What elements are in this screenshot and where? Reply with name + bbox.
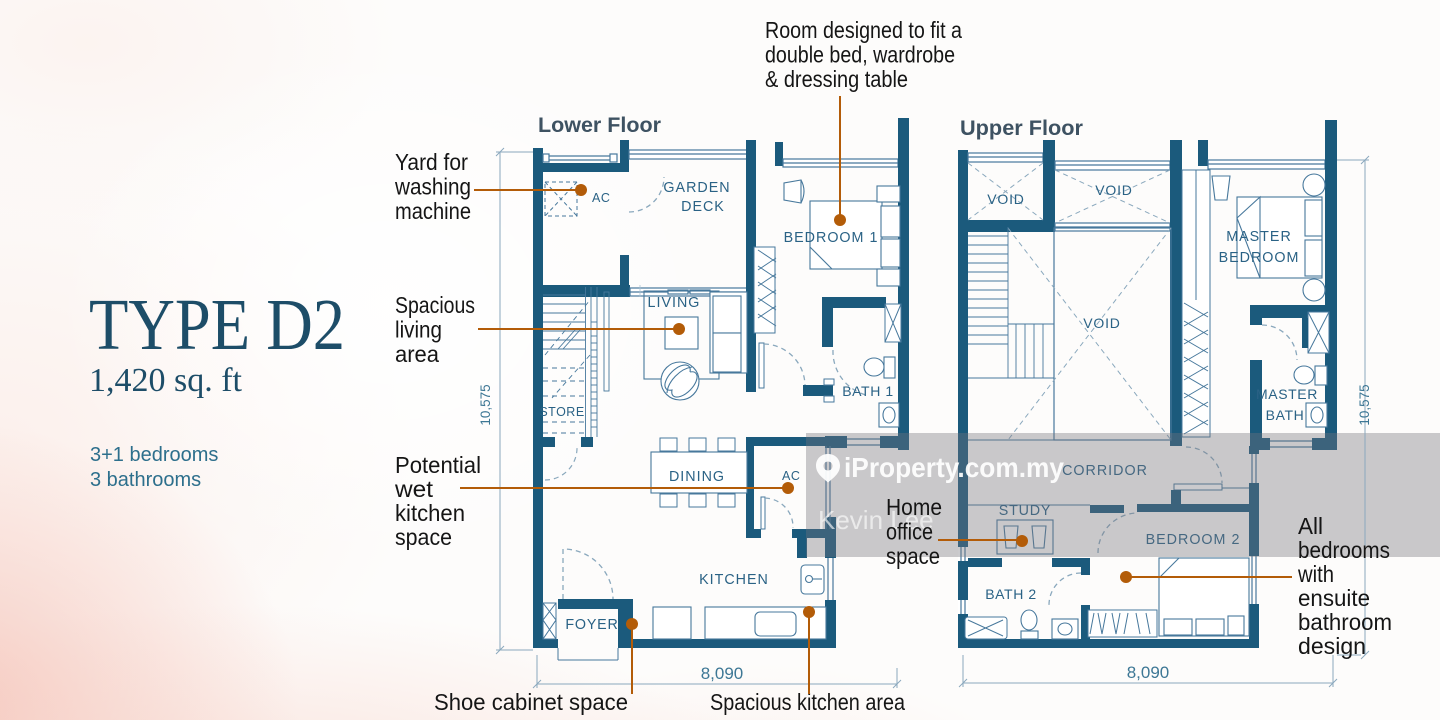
svg-text:AC: AC <box>592 191 610 205</box>
svg-text:BATH 1: BATH 1 <box>842 383 894 399</box>
svg-text:BEDROOM 1: BEDROOM 1 <box>784 230 879 246</box>
svg-text:KITCHEN: KITCHEN <box>699 572 769 588</box>
svg-text:BEDROOM: BEDROOM <box>1219 250 1300 266</box>
svg-text:ensuite: ensuite <box>1298 585 1370 611</box>
svg-text:VOID: VOID <box>1083 315 1120 331</box>
svg-text:Upper Floor: Upper Floor <box>960 116 1084 140</box>
svg-text:double bed, wardrobe: double bed, wardrobe <box>765 42 955 68</box>
svg-text:office: office <box>886 519 933 545</box>
svg-text:1,420 sq. ft: 1,420 sq. ft <box>89 362 243 399</box>
svg-text:MASTER: MASTER <box>1226 229 1292 245</box>
svg-text:8,090: 8,090 <box>701 664 744 683</box>
svg-text:machine: machine <box>395 198 471 224</box>
svg-text:space: space <box>886 543 940 569</box>
svg-text:with: with <box>1297 561 1334 587</box>
svg-text:10,575: 10,575 <box>478 384 493 425</box>
svg-text:Lower Floor: Lower Floor <box>538 113 662 137</box>
svg-text:3+1 bedrooms: 3+1 bedrooms <box>90 444 218 466</box>
svg-text:Yard for: Yard for <box>395 149 468 175</box>
svg-text:TYPE D2: TYPE D2 <box>89 284 345 365</box>
svg-text:FOYER: FOYER <box>565 617 618 633</box>
svg-text:GARDEN: GARDEN <box>663 180 730 196</box>
svg-text:living: living <box>395 317 442 343</box>
svg-text:Shoe cabinet space: Shoe cabinet space <box>434 689 628 715</box>
svg-text:LIVING: LIVING <box>648 295 701 311</box>
svg-text:kitchen: kitchen <box>395 500 465 526</box>
svg-text:8,090: 8,090 <box>1127 663 1170 682</box>
svg-text:bathroom: bathroom <box>1298 609 1392 635</box>
svg-text:design: design <box>1298 633 1366 659</box>
svg-text:MASTER: MASTER <box>1256 386 1318 402</box>
svg-text:DINING: DINING <box>669 469 725 485</box>
svg-text:Spacious kitchen area: Spacious kitchen area <box>710 689 905 715</box>
svg-text:BATH: BATH <box>1266 407 1305 423</box>
svg-text:Room designed to fit a: Room designed to fit a <box>765 17 962 43</box>
svg-text:& dressing table: & dressing table <box>765 66 908 92</box>
svg-text:space: space <box>395 524 452 550</box>
svg-text:washing: washing <box>394 174 471 200</box>
svg-text:Potential: Potential <box>395 452 481 478</box>
svg-text:VOID: VOID <box>1095 182 1132 198</box>
svg-text:3 bathrooms: 3 bathrooms <box>90 469 201 491</box>
svg-text:STORE: STORE <box>539 405 584 419</box>
svg-text:DECK: DECK <box>681 199 725 215</box>
svg-text:AC: AC <box>782 469 800 483</box>
svg-text:All: All <box>1298 513 1323 539</box>
svg-text:bedrooms: bedrooms <box>1298 537 1390 563</box>
svg-text:iProperty.com.my: iProperty.com.my <box>844 452 1065 483</box>
svg-text:BATH 2: BATH 2 <box>985 586 1037 602</box>
svg-text:area: area <box>395 341 439 367</box>
svg-text:Spacious: Spacious <box>395 292 475 318</box>
svg-text:VOID: VOID <box>987 191 1024 207</box>
svg-text:Home: Home <box>886 494 942 520</box>
svg-text:10,575: 10,575 <box>1357 384 1372 425</box>
svg-text:wet: wet <box>394 476 434 502</box>
